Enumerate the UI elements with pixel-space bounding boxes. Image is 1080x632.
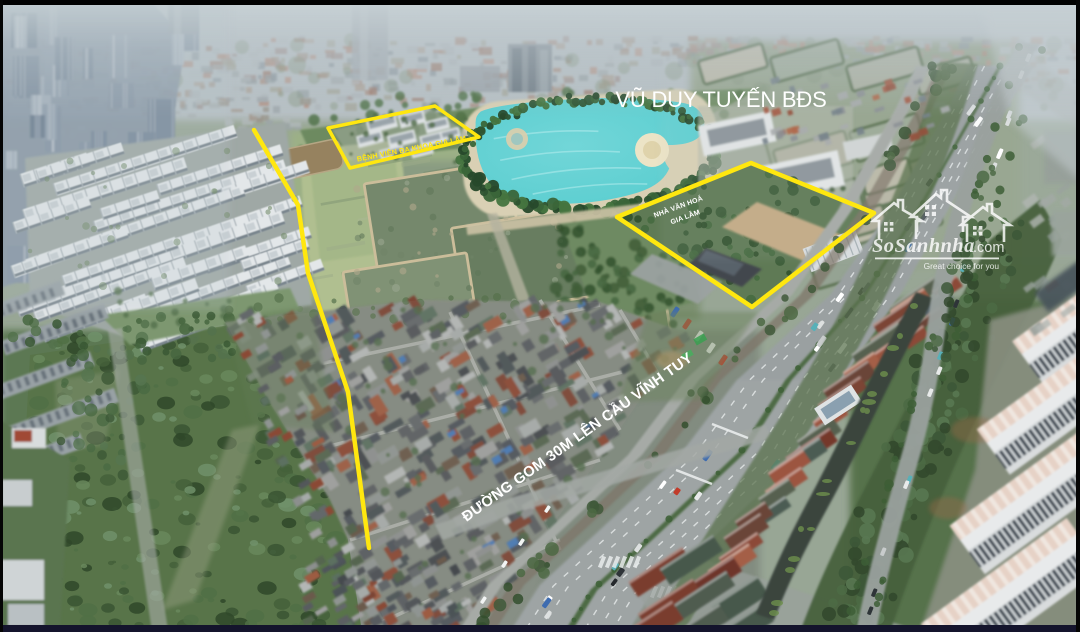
svg-text:.com: .com — [973, 240, 1004, 256]
svg-text:Great choice for you: Great choice for you — [924, 261, 1000, 271]
svg-text:SoSanhnha: SoSanhnha — [872, 235, 975, 257]
svg-text:VŨ DUY TUYẾN BĐS: VŨ DUY TUYẾN BĐS — [615, 87, 826, 112]
